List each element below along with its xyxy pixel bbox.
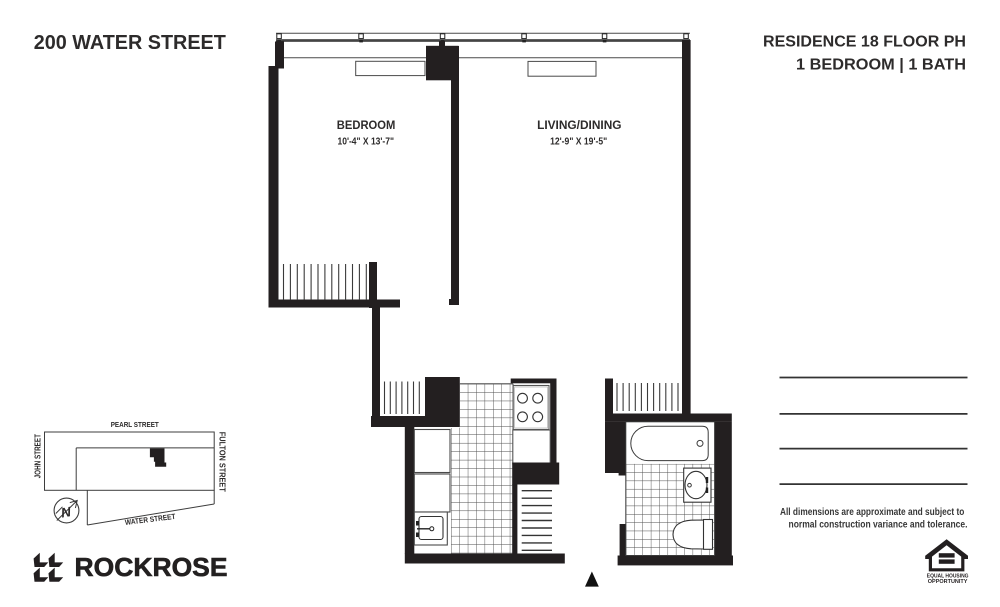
svg-text:All dimensions are approximate: All dimensions are approximate and subje… [780, 507, 964, 518]
svg-text:10'-4" X 13'-7": 10'-4" X 13'-7" [338, 137, 395, 148]
svg-text:PEARL STREET: PEARL STREET [111, 420, 159, 429]
svg-text:BEDROOM: BEDROOM [337, 118, 396, 132]
svg-text:1 BEDROOM | 1 BATH: 1 BEDROOM | 1 BATH [796, 57, 966, 74]
svg-text:WATER STREET: WATER STREET [124, 512, 176, 527]
svg-text:OPPORTUNITY: OPPORTUNITY [928, 579, 968, 585]
svg-text:LIVING/DINING: LIVING/DINING [537, 118, 621, 132]
svg-text:ROCKROSE: ROCKROSE [75, 552, 228, 582]
svg-text:200 WATER STREET: 200 WATER STREET [34, 32, 227, 54]
svg-text:JOHN STREET: JOHN STREET [33, 434, 42, 478]
svg-text:12'-9" X 19'-5": 12'-9" X 19'-5" [550, 137, 607, 148]
svg-text:FULTON STREET: FULTON STREET [217, 432, 226, 492]
svg-text:normal construction variance a: normal construction variance and toleran… [789, 520, 968, 531]
svg-text:RESIDENCE 18 FLOOR PH: RESIDENCE 18 FLOOR PH [763, 33, 966, 50]
